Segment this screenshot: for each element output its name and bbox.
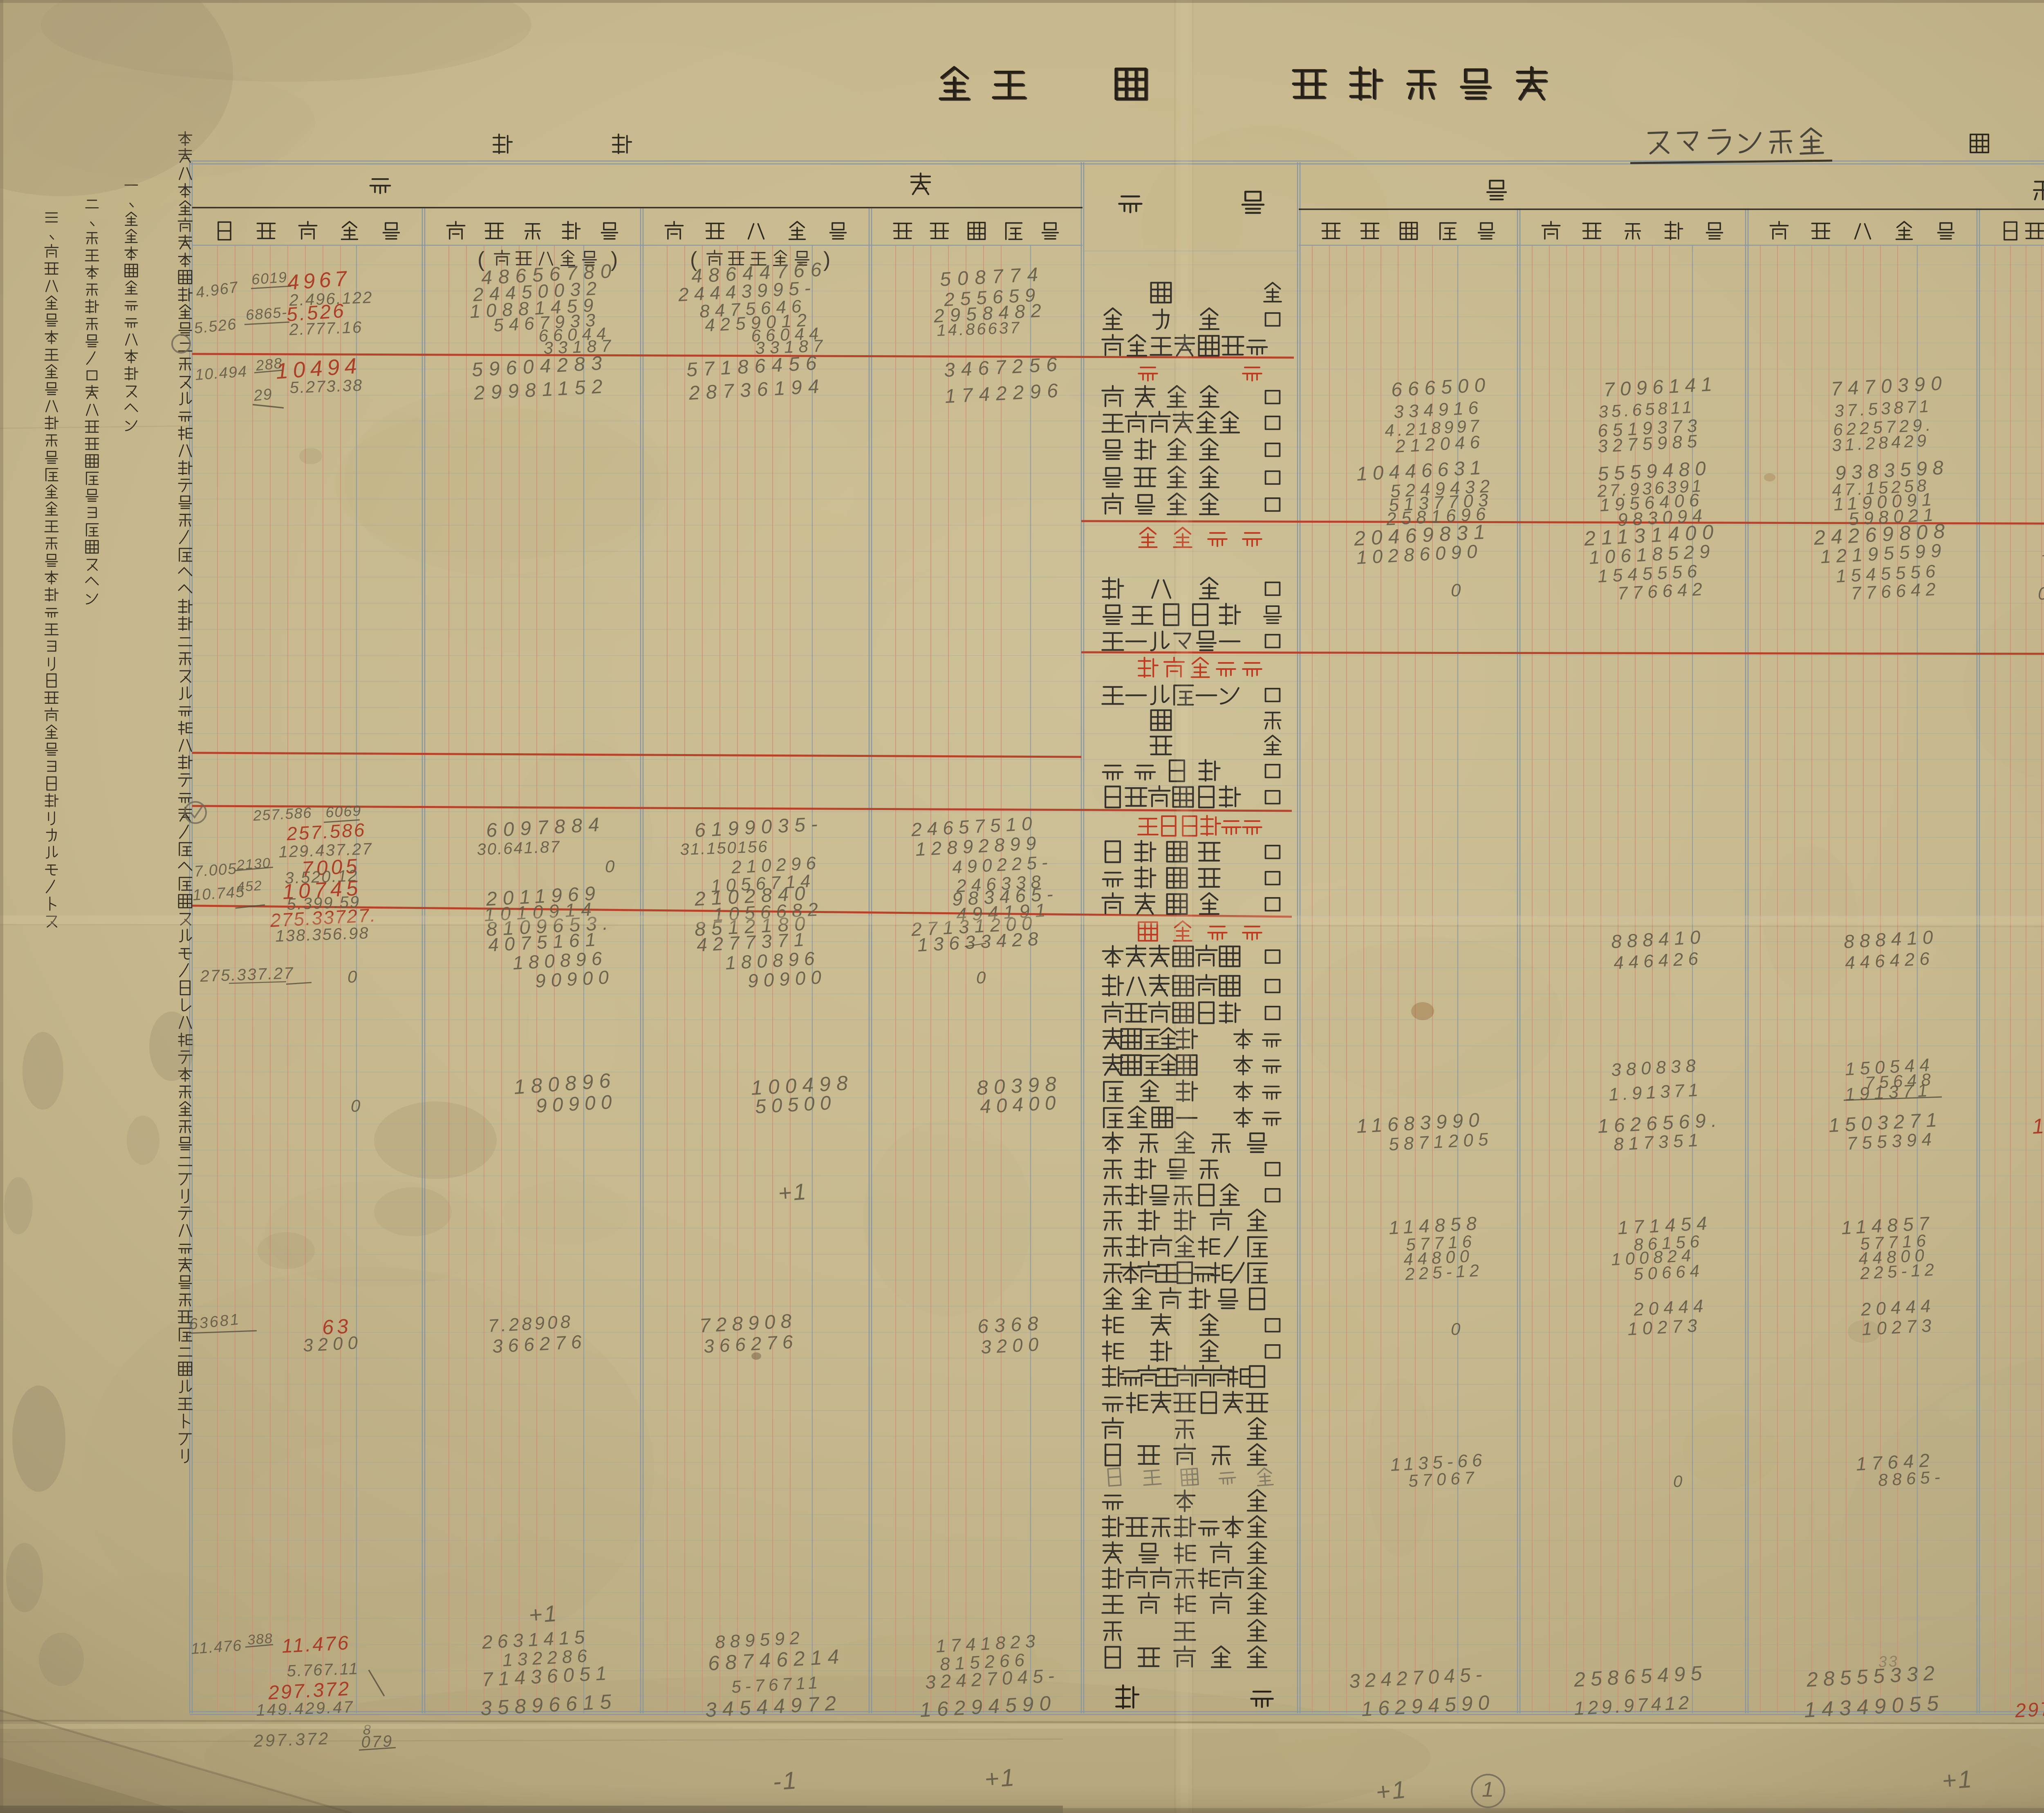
svg-text:2.777.16: 2.777.16 bbox=[289, 318, 363, 339]
svg-text:6019: 6019 bbox=[251, 269, 288, 288]
svg-text:50500: 50500 bbox=[755, 1092, 837, 1118]
svg-text:10.494: 10.494 bbox=[195, 363, 248, 384]
svg-text:3200: 3200 bbox=[303, 1332, 363, 1356]
svg-text:11.476: 11.476 bbox=[281, 1632, 351, 1657]
svg-text:31.150156: 31.150156 bbox=[680, 837, 769, 859]
svg-text:225-12: 225-12 bbox=[1404, 1260, 1484, 1284]
svg-text:29: 29 bbox=[253, 385, 273, 405]
svg-text:297.372: 297.372 bbox=[253, 1729, 330, 1751]
svg-text:138.356.98: 138.356.98 bbox=[275, 924, 370, 945]
svg-text:+1: +1 bbox=[777, 1178, 808, 1206]
svg-text:0: 0 bbox=[605, 857, 615, 876]
svg-text:57067: 57067 bbox=[1408, 1468, 1479, 1491]
svg-text:297.372: 297.372 bbox=[2014, 1696, 2044, 1722]
svg-text:30.641.87: 30.641.87 bbox=[477, 838, 561, 859]
svg-text:118072: 118072 bbox=[2032, 1110, 2044, 1139]
svg-text:7.005: 7.005 bbox=[194, 860, 238, 880]
svg-text:90900: 90900 bbox=[747, 966, 827, 992]
svg-text:+1: +1 bbox=[528, 1600, 559, 1628]
svg-text:6865-: 6865- bbox=[245, 304, 288, 323]
svg-text:0: 0 bbox=[347, 967, 357, 986]
svg-text:0: 0 bbox=[1673, 1473, 1682, 1491]
svg-text:3200: 3200 bbox=[980, 1333, 1044, 1358]
svg-text:5.767.11: 5.767.11 bbox=[287, 1660, 359, 1680]
svg-text:10273: 10273 bbox=[1627, 1316, 1703, 1339]
svg-text:149.429.47: 149.429.47 bbox=[256, 1698, 355, 1719]
svg-text:5.273.38: 5.273.38 bbox=[289, 376, 363, 397]
svg-text:0: 0 bbox=[1451, 1319, 1461, 1338]
svg-text:90900: 90900 bbox=[535, 966, 614, 992]
svg-text:225-12: 225-12 bbox=[1859, 1260, 1939, 1283]
svg-text:40400: 40400 bbox=[979, 1092, 1062, 1118]
svg-text:11.476: 11.476 bbox=[191, 1637, 243, 1658]
svg-text:0: 0 bbox=[351, 1096, 361, 1115]
svg-text:8865-: 8865- bbox=[1878, 1467, 1945, 1490]
svg-text:0: 0 bbox=[2038, 584, 2044, 604]
svg-text:452: 452 bbox=[236, 878, 263, 895]
svg-text:33: 33 bbox=[1878, 1653, 1899, 1671]
svg-text:14.86637: 14.86637 bbox=[937, 319, 1022, 340]
svg-text:90900: 90900 bbox=[536, 1091, 618, 1117]
svg-text:0: 0 bbox=[976, 968, 986, 987]
svg-text:0: 0 bbox=[1451, 580, 1461, 600]
svg-text:257.586: 257.586 bbox=[252, 804, 312, 824]
svg-text:50664: 50664 bbox=[1633, 1261, 1704, 1284]
svg-text:6069: 6069 bbox=[325, 802, 362, 821]
